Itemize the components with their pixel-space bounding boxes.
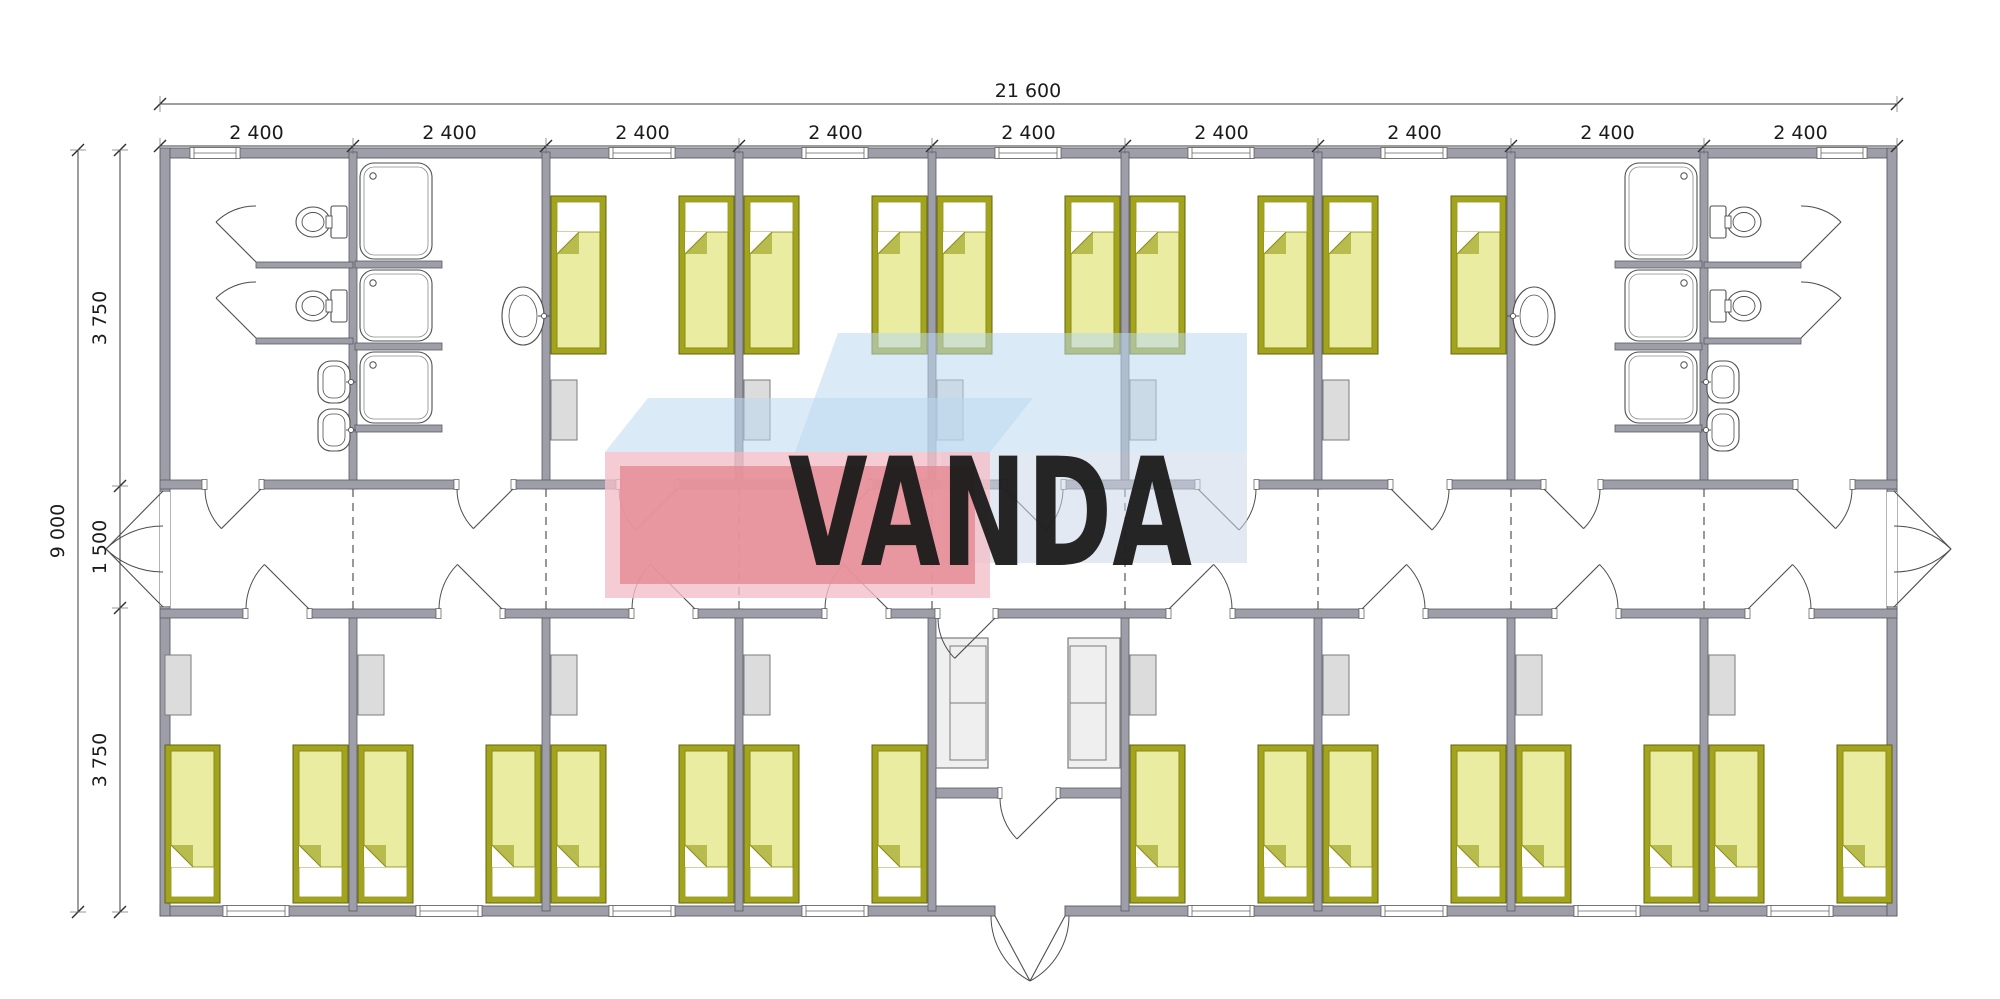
door-leaf: [106, 491, 163, 549]
shower-tray: [1625, 270, 1697, 341]
door-swing-arc: [1600, 564, 1618, 609]
door-jamb: [1166, 609, 1171, 619]
door-leaf: [1017, 798, 1058, 839]
bed: [679, 745, 734, 903]
door-jamb: [1254, 480, 1259, 490]
floor-plan-drawing: 21 6002 4002 4002 4002 4002 4002 4002 40…: [0, 0, 2000, 999]
window-cap: [609, 906, 613, 917]
window-cap: [1188, 906, 1192, 917]
bed: [358, 745, 413, 903]
shower-tray: [360, 270, 432, 341]
corridor-wall-bottom: [1232, 609, 1362, 618]
corridor-wall-top: [1256, 480, 1391, 489]
basin-rim: [1513, 287, 1555, 345]
shower-tray: [1625, 163, 1697, 259]
door-swing-arc: [106, 526, 163, 549]
window-cap: [671, 148, 675, 159]
window-cap: [1636, 906, 1640, 917]
door-jamb: [202, 480, 207, 490]
wardrobe: [1516, 655, 1542, 715]
gable-doorway-gap: [1887, 492, 1897, 606]
door-swing-arc: [1584, 489, 1600, 529]
window-cap: [223, 906, 227, 917]
door-jamb: [436, 609, 441, 619]
door-jamb: [511, 480, 516, 490]
faucet-handle: [348, 379, 353, 384]
bed: [872, 196, 927, 354]
gable-doorway-gap: [160, 492, 170, 606]
door-swing-arc: [205, 489, 221, 529]
door-swing-arc: [439, 564, 457, 609]
window-cap: [609, 148, 613, 159]
door-swing-arc: [1000, 798, 1017, 839]
bed-pillow: [492, 867, 535, 897]
dimension-label-module-width: 2 400: [1773, 122, 1827, 144]
bed: [1516, 745, 1571, 903]
bed-pillow: [943, 202, 986, 232]
window-cap: [1057, 148, 1061, 159]
corridor-wall-bottom: [1425, 609, 1555, 618]
basin-rim: [502, 287, 544, 345]
dimension-label-module-width: 2 400: [1387, 122, 1441, 144]
window-cap: [1574, 906, 1578, 917]
bed-pillow: [685, 202, 728, 232]
bed: [1644, 745, 1699, 903]
dimension-label-module-width: 2 400: [1001, 122, 1055, 144]
bed: [551, 745, 606, 903]
toilet-seat-hinge: [1725, 216, 1731, 228]
door-swing-arc: [246, 564, 264, 609]
toilet-bowl: [1727, 207, 1761, 237]
window-cap: [1443, 148, 1447, 159]
door-jamb: [886, 609, 891, 619]
door-jamb: [307, 609, 312, 619]
door-jamb: [243, 609, 248, 619]
partition-wall-bottom-row: [1121, 609, 1129, 911]
door-jamb: [1423, 609, 1428, 619]
window-cap: [190, 148, 194, 159]
door-jamb: [993, 609, 998, 619]
bed-pillow: [557, 867, 600, 897]
door-swing-arc: [216, 282, 256, 298]
door-jamb: [1745, 609, 1750, 619]
door-leaf: [106, 549, 163, 607]
faucet-handle: [1510, 313, 1515, 318]
door-leaf: [1801, 298, 1841, 338]
bed: [1323, 196, 1378, 354]
wardrobe: [551, 655, 577, 715]
door-jamb: [1541, 480, 1546, 490]
window-cap: [1381, 148, 1385, 159]
toilet-seat-hinge: [326, 216, 332, 228]
partition-wall-bottom-row: [542, 609, 550, 911]
partition-wall-bottom-row: [1314, 609, 1322, 911]
toilet-bowl: [296, 207, 330, 237]
door-leaf: [1544, 489, 1584, 529]
door-jamb: [1809, 609, 1814, 619]
vestibule-partition-wall: [936, 788, 1000, 798]
faucet-handle: [541, 313, 546, 318]
door-leaf: [473, 489, 513, 529]
door-jamb: [1359, 609, 1364, 619]
corridor-wall-bottom: [1811, 609, 1897, 618]
window-cap: [416, 906, 420, 917]
toilet-tank: [331, 290, 347, 322]
corridor-wall-top: [1852, 480, 1897, 489]
shower-divider: [355, 261, 442, 268]
door-jamb: [1388, 480, 1393, 490]
faucet-handle: [348, 427, 353, 432]
shower-tray: [1625, 352, 1697, 423]
bed-pillow: [1071, 202, 1114, 232]
window-cap: [1250, 906, 1254, 917]
bed-pillow: [685, 867, 728, 897]
door-jamb: [1447, 480, 1452, 490]
window-cap: [285, 906, 289, 917]
bed-pillow: [1329, 202, 1372, 232]
wardrobe: [1323, 380, 1349, 440]
bed-pillow: [1715, 867, 1758, 897]
door-jamb: [693, 609, 698, 619]
window-cap: [802, 906, 806, 917]
door-swing-arc: [1407, 564, 1425, 609]
dimension-label-module-width: 2 400: [422, 122, 476, 144]
toilet-stall-wall: [1704, 262, 1801, 268]
dimension-label-overall-height: 9 000: [47, 504, 69, 558]
faucet-handle: [1703, 427, 1708, 432]
bed-pillow: [750, 867, 793, 897]
bed-pillow: [1264, 202, 1307, 232]
bed: [1837, 745, 1892, 903]
door-jamb: [822, 609, 827, 619]
bed: [165, 745, 220, 903]
shower-tray-rim: [360, 163, 432, 259]
door-leaf: [1030, 916, 1065, 981]
faucet-handle: [1703, 379, 1708, 384]
window-cap: [236, 148, 240, 159]
partition-wall-bottom-row: [349, 609, 357, 911]
door-jamb: [1598, 480, 1603, 490]
door-swing-arc: [1801, 206, 1841, 222]
bed-pillow: [1843, 867, 1886, 897]
door-leaf: [1894, 549, 1951, 607]
window-cap: [1863, 148, 1867, 159]
bed: [1130, 745, 1185, 903]
door-jamb: [1552, 609, 1557, 619]
window-cap: [1381, 906, 1385, 917]
door-jamb: [454, 480, 459, 490]
door-jamb: [629, 609, 634, 619]
toilet-tank: [1710, 206, 1726, 238]
door-jamb: [1056, 788, 1060, 799]
wardrobe: [1709, 655, 1735, 715]
bed-pillow: [557, 202, 600, 232]
window-cap: [1829, 906, 1833, 917]
bed-pillow: [364, 867, 407, 897]
corridor-wall-top: [160, 480, 205, 489]
corridor-wall-bottom: [695, 609, 825, 618]
door-leaf: [1796, 489, 1836, 529]
door-leaf: [457, 564, 502, 609]
door-swing-arc: [106, 549, 163, 572]
window-cap: [1250, 148, 1254, 159]
toilet-bowl: [1727, 291, 1761, 321]
wardrobe: [1130, 655, 1156, 715]
partition-wall-bottom-row: [1507, 609, 1515, 911]
sofa: [936, 638, 988, 768]
dimension-label-overall-width: 21 600: [995, 80, 1061, 102]
door-leaf: [216, 298, 256, 338]
dimension-label-bottom-row-depth: 3 750: [89, 733, 111, 787]
shower-divider: [355, 343, 442, 350]
bed: [744, 196, 799, 354]
bed-pillow: [1522, 867, 1565, 897]
door-jamb: [998, 788, 1002, 799]
door-leaf: [1362, 564, 1407, 609]
toilet-tank: [1710, 290, 1726, 322]
toilet: [296, 290, 347, 322]
bed: [486, 745, 541, 903]
wardrobe: [358, 655, 384, 715]
shower-tray: [360, 352, 432, 423]
window-cap: [1817, 148, 1821, 159]
door-jamb: [1850, 480, 1855, 490]
bed: [1258, 745, 1313, 903]
vestibule-partition-wall: [1058, 788, 1121, 798]
bed: [1258, 196, 1313, 354]
corridor-wall-top: [1600, 480, 1796, 489]
bed: [1451, 196, 1506, 354]
bed: [1130, 196, 1185, 354]
door-swing-arc: [1801, 282, 1841, 298]
door-leaf: [216, 222, 256, 262]
dimension-label-top-row-depth: 3 750: [89, 291, 111, 345]
wardrobe: [744, 655, 770, 715]
bed-pillow: [299, 867, 342, 897]
dimension-label-module-width: 2 400: [615, 122, 669, 144]
window-cap: [1767, 906, 1771, 917]
bed-pillow: [171, 867, 214, 897]
toilet-stall-wall: [256, 262, 353, 268]
corridor-wall-top: [261, 480, 457, 489]
corridor-wall-top: [513, 480, 619, 489]
door-leaf: [264, 564, 309, 609]
toilet-stall-wall: [1704, 338, 1801, 344]
door-leaf: [1391, 489, 1432, 530]
door-jamb: [935, 609, 940, 619]
toilet-seat-hinge: [1725, 300, 1731, 312]
toilet-bowl: [296, 291, 330, 321]
toilet: [296, 206, 347, 238]
wardrobe: [1323, 655, 1349, 715]
sofa: [1068, 638, 1120, 768]
door-swing-arc: [1793, 564, 1811, 609]
window-cap: [1188, 148, 1192, 159]
bed-pillow: [878, 202, 921, 232]
shower-tray-rim: [1625, 163, 1697, 259]
door-leaf: [1801, 222, 1841, 262]
toilet: [1710, 206, 1761, 238]
window-cap: [802, 148, 806, 159]
partition-wall-bottom-row: [928, 609, 936, 911]
bed: [679, 196, 734, 354]
door-jamb: [1793, 480, 1798, 490]
door-leaf: [995, 916, 1030, 981]
toilet-tank: [331, 206, 347, 238]
corridor-wall-bottom: [888, 609, 938, 618]
dimension-label-module-width: 2 400: [1580, 122, 1634, 144]
bed-pillow: [1264, 867, 1307, 897]
door-swing-arc: [1894, 526, 1951, 549]
shower-divider: [355, 425, 442, 432]
window-cap: [478, 906, 482, 917]
door-swing-arc: [457, 489, 473, 529]
door-jamb: [1230, 609, 1235, 619]
watermark-text: VANDA: [788, 427, 1192, 601]
bed-pillow: [1329, 867, 1372, 897]
bed: [293, 745, 348, 903]
bed-pillow: [750, 202, 793, 232]
door-swing-arc: [1894, 549, 1951, 572]
window-cap: [671, 906, 675, 917]
shower-divider: [1615, 425, 1702, 432]
corridor-wall-bottom: [1618, 609, 1748, 618]
wardrobe: [165, 655, 191, 715]
corridor-wall-bottom: [309, 609, 439, 618]
window-cap: [864, 906, 868, 917]
bed: [1323, 745, 1378, 903]
bed-pillow: [878, 867, 921, 897]
window-cap: [1443, 906, 1447, 917]
bed: [937, 196, 992, 354]
dimension-label-module-width: 2 400: [808, 122, 862, 144]
corridor-wall-bottom: [502, 609, 632, 618]
bed: [1451, 745, 1506, 903]
dimension-label-module-width: 2 400: [1194, 122, 1248, 144]
door-jamb: [500, 609, 505, 619]
door-leaf: [1748, 564, 1793, 609]
toilet-seat-hinge: [326, 300, 332, 312]
door-leaf: [1894, 491, 1951, 549]
toilet: [1710, 290, 1761, 322]
bed: [872, 745, 927, 903]
wardrobe: [551, 380, 577, 440]
entrance-doorway-gap: [995, 906, 1065, 917]
watermark: VANDA: [605, 333, 1247, 601]
bed: [551, 196, 606, 354]
bed: [744, 745, 799, 903]
door-leaf: [221, 489, 261, 529]
door-jamb: [259, 480, 264, 490]
partition-wall-top-row: [1314, 152, 1322, 489]
bed-pillow: [1457, 202, 1500, 232]
toilet-stall-wall: [256, 338, 353, 344]
corridor-wall-top: [1449, 480, 1544, 489]
dimension-label-corridor-width: 1 500: [89, 520, 111, 574]
partition-wall-bottom-row: [735, 609, 743, 911]
bed: [1709, 745, 1764, 903]
door-swing-arc: [216, 206, 256, 222]
door-jamb: [1616, 609, 1621, 619]
bed-pillow: [1457, 867, 1500, 897]
floor-plan-canvas: 21 6002 4002 4002 4002 4002 4002 4002 40…: [0, 0, 2000, 999]
door-leaf: [1555, 564, 1600, 609]
shower-tray: [360, 163, 432, 259]
door-swing-arc: [1214, 564, 1232, 609]
door-swing-arc: [1836, 489, 1852, 529]
bed-pillow: [1136, 202, 1179, 232]
bed-pillow: [1136, 867, 1179, 897]
shower-divider: [1615, 343, 1702, 350]
door-swing-arc: [1432, 489, 1449, 530]
shower-divider: [1615, 261, 1702, 268]
corridor-wall-bottom: [995, 609, 1169, 618]
bed-pillow: [1650, 867, 1693, 897]
corridor-wall-bottom: [160, 609, 246, 618]
partition-wall-bottom-row: [1700, 609, 1708, 911]
window-cap: [995, 148, 999, 159]
dimension-label-module-width: 2 400: [229, 122, 283, 144]
bed: [1065, 196, 1120, 354]
window-cap: [864, 148, 868, 159]
